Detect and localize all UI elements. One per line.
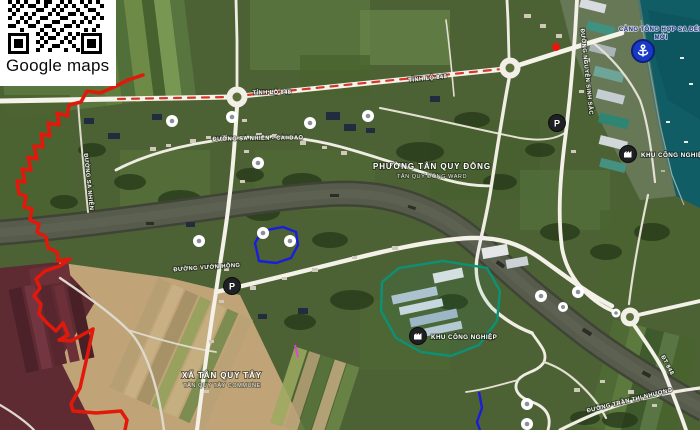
svg-text:P: P — [229, 282, 235, 292]
svg-text:MỚI: MỚI — [654, 33, 667, 41]
svg-text:PHƯỜNG TÂN QUY ĐÔNG: PHƯỜNG TÂN QUY ĐÔNG — [373, 162, 491, 171]
screenshot-canvas: P P — [0, 0, 700, 430]
svg-text:XÃ TÂN QUY TÂY: XÃ TÂN QUY TÂY — [182, 371, 262, 380]
svg-text:TÂN QUY ĐÔNG WARD: TÂN QUY ĐÔNG WARD — [397, 173, 467, 180]
qr-code — [8, 0, 104, 54]
svg-text:TÂN QUY TÂY COMMUNE: TÂN QUY TÂY COMMUNE — [183, 382, 261, 389]
industrial-zone-label[interactable]: KHU CÔNG NGHIỆP — [431, 332, 497, 341]
marker-dot-icon[interactable] — [552, 43, 560, 51]
svg-text:CẢNG TỔNG HỢP SA ĐÉC: CẢNG TỔNG HỢP SA ĐÉC — [619, 25, 700, 33]
svg-text:P: P — [554, 119, 560, 129]
qr-finder-bottom-right — [81, 33, 102, 54]
anchor-icon[interactable] — [632, 40, 654, 62]
qr-card: Google maps — [0, 0, 116, 86]
industrial-zone-label[interactable]: KHU CÔNG NGHIỆP — [641, 150, 700, 159]
qr-caption: Google maps — [6, 56, 116, 76]
qr-finder-bottom-left — [8, 33, 29, 54]
